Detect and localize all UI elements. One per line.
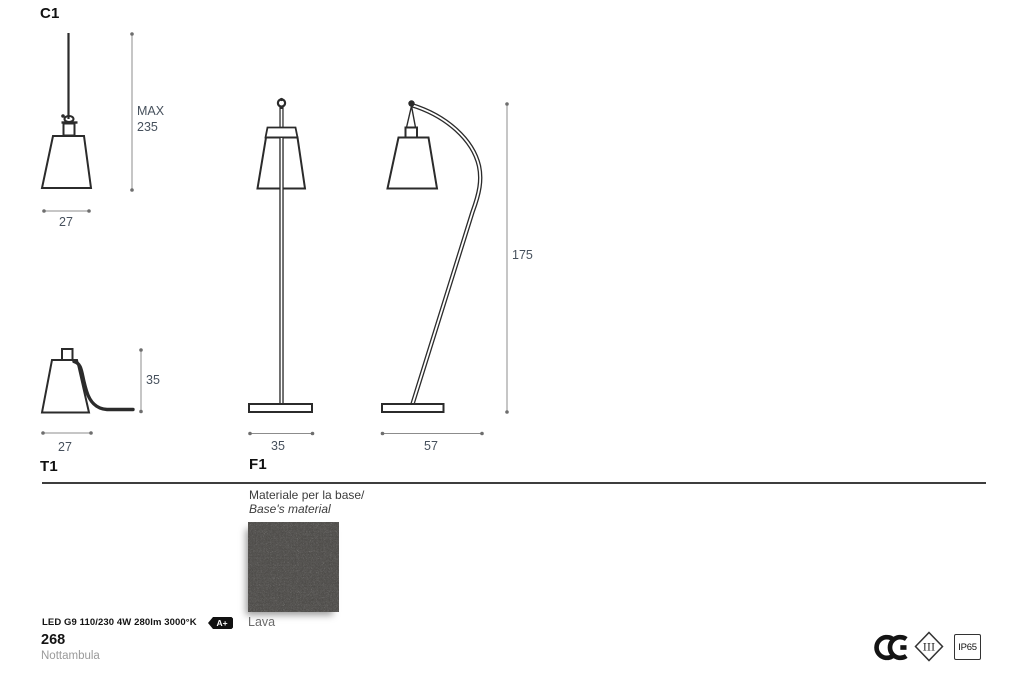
pendant-variant-label: C1 [40, 5, 60, 22]
table-lamp-socket [62, 349, 73, 360]
ce-mark-icon [876, 634, 906, 661]
straight-floor-lamp-drawing [249, 98, 312, 412]
protection-class-text: III [923, 642, 935, 654]
floor-variant-label: F1 [249, 456, 267, 473]
straight-floor-lamp-knob-tip [280, 98, 283, 101]
material-swatch-name: Lava [248, 615, 275, 629]
ip-rating-text: IP65 [958, 642, 977, 653]
pendant-lamp-drawing [42, 33, 91, 188]
arched-floor-lamp-width-value: 57 [424, 439, 438, 453]
product-name: Nottambula [41, 650, 100, 662]
section-divider [42, 482, 986, 484]
pendant-max-height-value: 235 [137, 120, 158, 134]
material-title-english: Base's material [249, 502, 331, 516]
pendant-max-label: MAX [137, 104, 164, 118]
pendant-socket [64, 124, 75, 136]
table-lamp-width-value: 27 [58, 440, 72, 454]
arched-floor-lamp-drawing [382, 100, 480, 412]
floor-lamp-height-value: 175 [512, 248, 533, 262]
energy-class-badge: A+ [208, 617, 233, 629]
pendant-cord-knot-tip [61, 114, 65, 118]
arched-floor-lamp-socket [406, 128, 418, 138]
lamp-spec-text: LED G9 110/230 4W 280lm 3000°K [42, 617, 197, 628]
arched-floor-lamp-shade [388, 138, 438, 189]
arched-floor-lamp-hanger [407, 106, 416, 128]
straight-floor-lamp-dimension-lines [248, 432, 314, 436]
pendant-width-value: 27 [59, 215, 73, 229]
page-number: 268 [41, 632, 65, 648]
lava-swatch-texture [248, 522, 339, 612]
material-title-italian: Materiale per la base/ [249, 488, 364, 502]
arched-floor-lamp-base [382, 404, 444, 412]
straight-floor-lamp-width-value: 35 [271, 439, 285, 453]
table-lamp-drawing [42, 349, 133, 413]
straight-floor-lamp-base [249, 404, 312, 412]
table-variant-label: T1 [40, 458, 58, 475]
pendant-shade [42, 136, 91, 188]
table-lamp-height-value: 35 [146, 373, 160, 387]
arched-floor-lamp-tip-knob [408, 100, 414, 106]
class-iii-diamond-icon: III [914, 631, 944, 662]
lava-material-swatch [248, 522, 339, 612]
catalog-page: C1 MAX 235 27 35 27 T1 35 F1 57 175 Mate… [0, 0, 1009, 699]
ip-rating-badge: IP65 [954, 634, 981, 660]
straight-floor-lamp-shade-band [266, 128, 298, 138]
